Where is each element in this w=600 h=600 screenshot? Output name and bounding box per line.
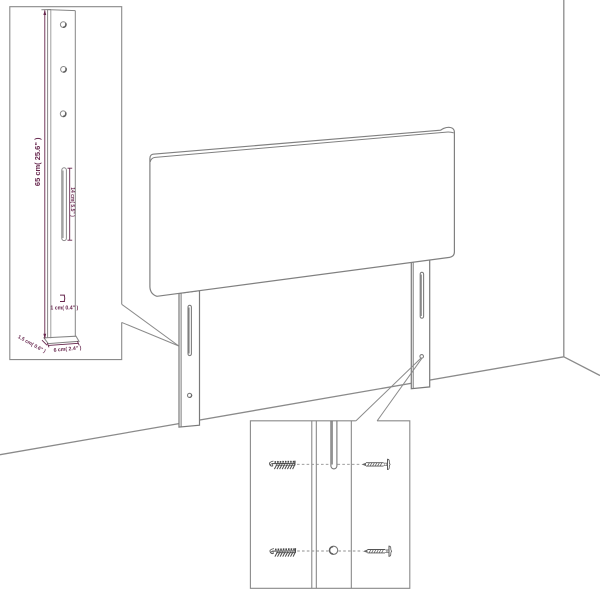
- svg-text:14 cm( 5.5" ): 14 cm( 5.5" ): [69, 187, 75, 217]
- svg-text:65 cm( 25.6" ): 65 cm( 25.6" ): [33, 137, 42, 186]
- svg-text:1 cm( 0.4" ): 1 cm( 0.4" ): [50, 305, 78, 311]
